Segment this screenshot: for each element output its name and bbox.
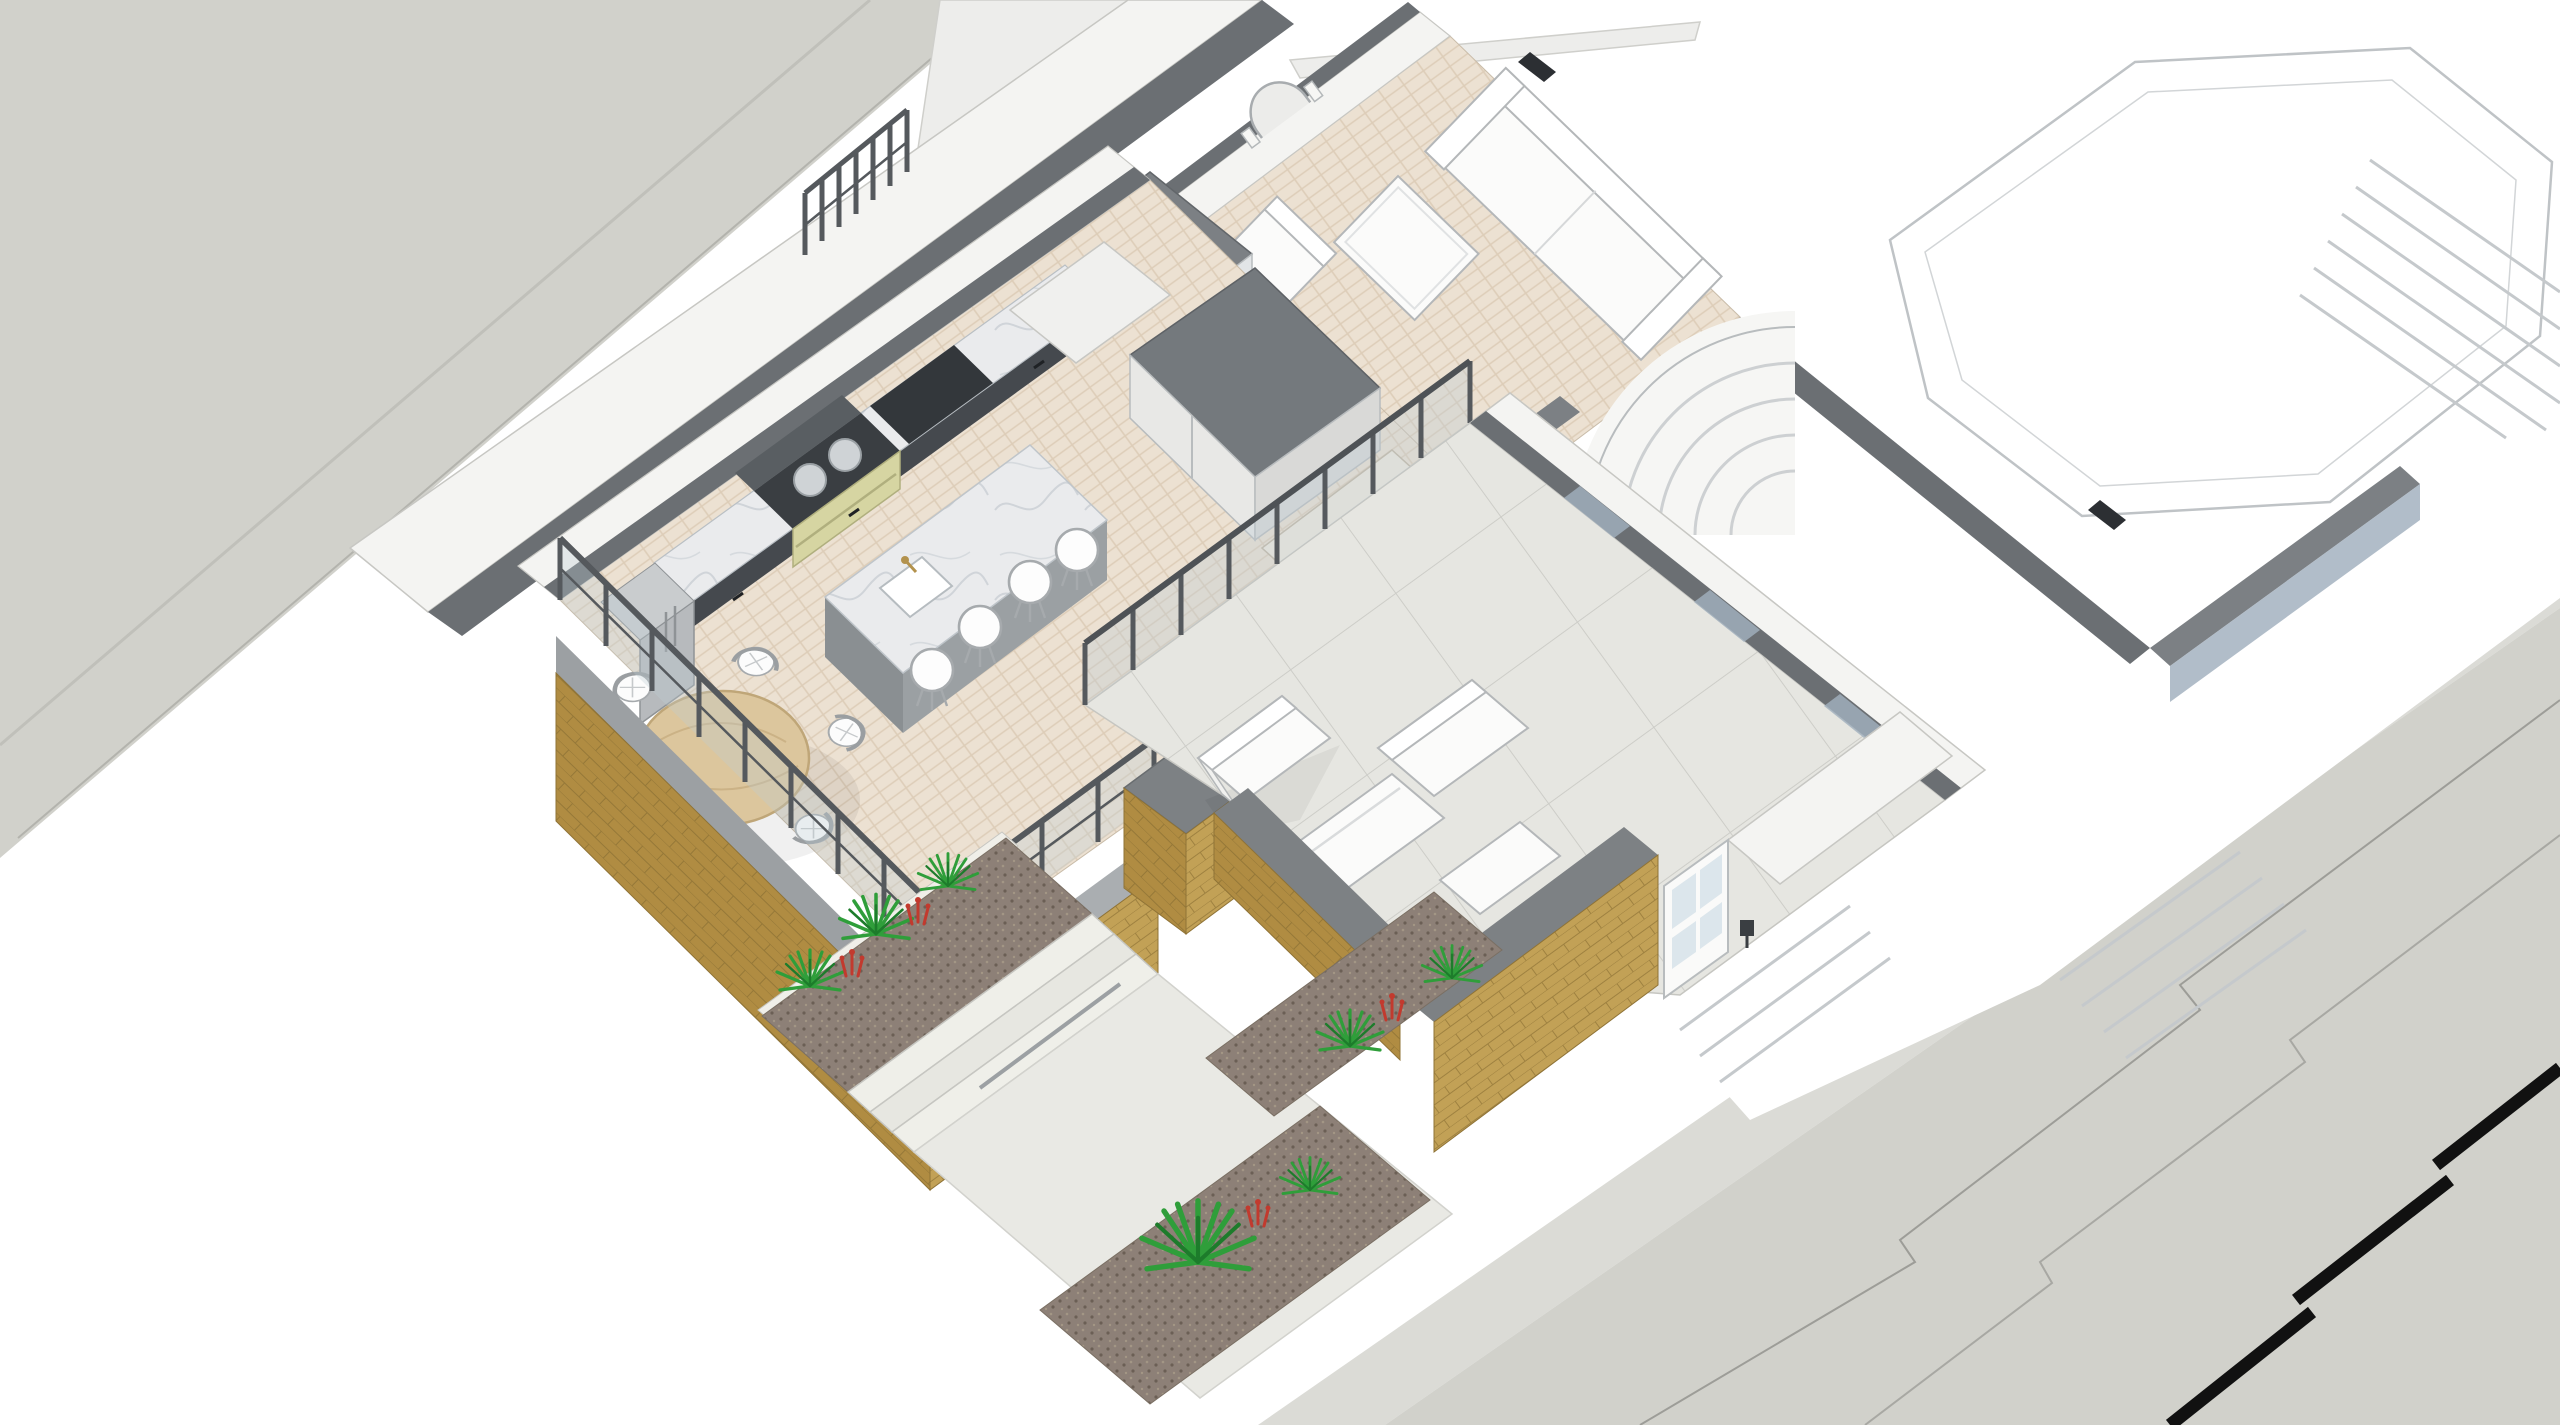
wall-lantern bbox=[1740, 920, 1754, 936]
range-lid-left bbox=[794, 464, 826, 496]
floorplan-render bbox=[0, 0, 2560, 1425]
range-lid-right bbox=[829, 439, 861, 471]
render-viewport bbox=[0, 0, 2560, 1425]
